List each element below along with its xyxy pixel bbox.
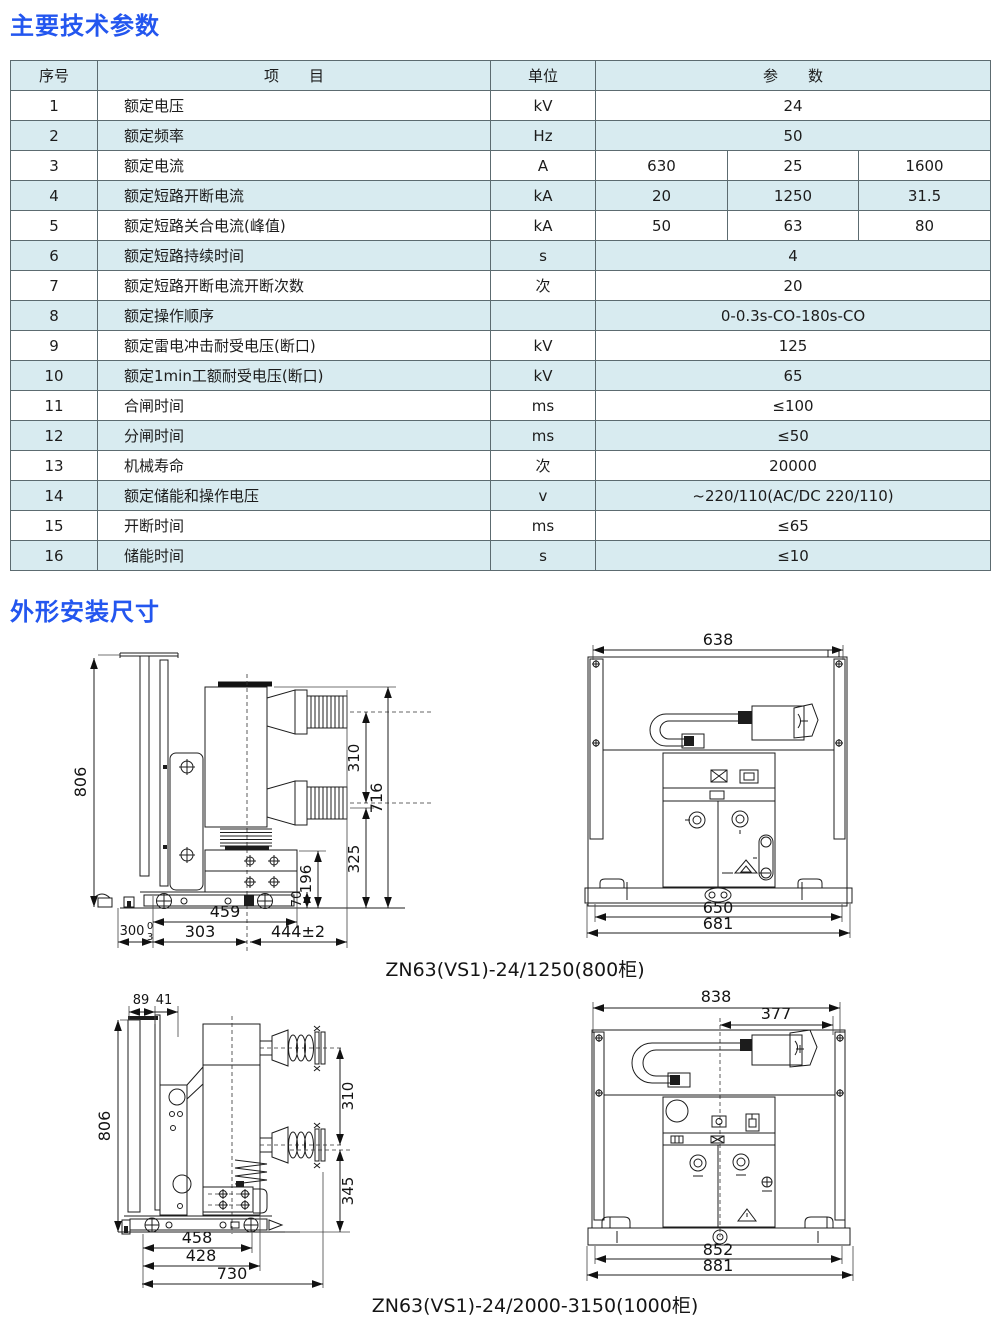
cell-value: ≤65 [596, 511, 991, 541]
cell-no: 15 [11, 511, 98, 541]
cell-no: 14 [11, 481, 98, 511]
cell-unit: kA [491, 211, 596, 241]
indicator-window-icon [711, 770, 758, 783]
dim-89-label: 89 [133, 993, 150, 1008]
cell-no: 6 [11, 241, 98, 271]
cell-no: 3 [11, 151, 98, 181]
cell-unit: ms [491, 511, 596, 541]
cell-item: 额定储能和操作电压 [98, 481, 491, 511]
dim-806-label: 806 [95, 1111, 114, 1142]
cell-value: 31.5 [859, 181, 991, 211]
cell-item: 额定电压 [98, 91, 491, 121]
breaker-side-outline [94, 653, 405, 952]
cell-item: 储能时间 [98, 541, 491, 571]
lower-bushing [260, 1123, 342, 1168]
cell-value: 0-0.3s-CO-180s-CO [596, 301, 991, 331]
table-row: 15开断时间ms≤65 [11, 511, 991, 541]
cell-item: 额定操作顺序 [98, 301, 491, 331]
dim-196-label: 196 [297, 865, 315, 894]
table-row: 16储能时间s≤10 [11, 541, 991, 571]
cell-item: 额定短路持续时间 [98, 241, 491, 271]
dim-638-label: 638 [703, 630, 734, 649]
cell-value: 20 [596, 271, 991, 301]
caption-800-cabinet: ZN63(VS1)-24/1250(800柜) [300, 955, 730, 982]
plug-connector [752, 1030, 817, 1067]
table-row: 11合闸时间ms≤100 [11, 391, 991, 421]
dim-881-label: 881 [703, 1256, 734, 1275]
section-title-technical-parameters: 主要技术参数 [10, 6, 160, 41]
dim-838-label: 838 [701, 987, 732, 1006]
cell-unit: v [491, 481, 596, 511]
dim-300-tol-lower: 3 [147, 932, 153, 943]
dim-310-label: 310 [345, 744, 363, 773]
operation-knob-icon [685, 811, 748, 834]
panel-bolt-icon [592, 660, 843, 747]
drawing-front-view-1000: 838 377 852 881 [570, 985, 1000, 1295]
dim-444-label: 444±2 [271, 922, 325, 941]
drawing-front-view-800: 638 650 681 [570, 630, 1000, 950]
drawing-side-view-1000: 89 41 806 310 345 458 428 730 [60, 982, 490, 1294]
section-title-dimensions: 外形安装尺寸 [10, 592, 160, 627]
cable-loop [650, 711, 752, 748]
cell-value: 20000 [596, 451, 991, 481]
cell-value: 50 [596, 211, 728, 241]
table-row: 4额定短路开断电流kA20125031.5 [11, 181, 991, 211]
cell-item: 合闸时间 [98, 391, 491, 421]
cell-value: ≤50 [596, 421, 991, 451]
cell-unit: 次 [491, 271, 596, 301]
dim-681-label: 681 [703, 914, 734, 933]
cell-value: ≤10 [596, 541, 991, 571]
cabinet-front-outline [585, 650, 852, 906]
cell-value: 24 [596, 91, 991, 121]
cell-no: 12 [11, 421, 98, 451]
cell-item: 额定短路开断电流开断次数 [98, 271, 491, 301]
cell-no: 16 [11, 541, 98, 571]
header-param: 参 数 [596, 61, 991, 91]
dim-716-label: 716 [367, 783, 386, 814]
header-unit: 单位 [491, 61, 596, 91]
warning-triangle-icon [738, 1209, 756, 1221]
cell-item: 开断时间 [98, 511, 491, 541]
cell-unit: s [491, 241, 596, 271]
cell-value: 1600 [859, 151, 991, 181]
breaker-side-outline [118, 1015, 342, 1234]
cell-value: 125 [596, 331, 991, 361]
dim-377-label: 377 [761, 1004, 792, 1023]
dim-300-label: 300 [120, 924, 145, 939]
warning-triangle-icon [722, 860, 770, 873]
table-row: 9额定雷电冲击耐受电压(断口)kV125 [11, 331, 991, 361]
box-bolt-icon [218, 1189, 250, 1210]
cell-unit: kA [491, 181, 596, 211]
cell-item: 分闸时间 [98, 421, 491, 451]
table-row: 2额定频率Hz50 [11, 121, 991, 151]
dimension-lines: 638 650 681 [587, 630, 850, 938]
cell-item: 额定雷电冲击耐受电压(断口) [98, 331, 491, 361]
dim-459-label: 459 [210, 902, 241, 921]
cell-value: ≤100 [596, 391, 991, 421]
bracket-bolt-icon [179, 759, 195, 863]
table-row: 8额定操作顺序0-0.3s-CO-180s-CO [11, 301, 991, 331]
cable-loop [632, 1039, 752, 1087]
table-header-row: 序号 项 目 单位 参 数 [11, 61, 991, 91]
operation-knob-icon [690, 1154, 749, 1176]
dim-806-label: 806 [71, 767, 90, 798]
dim-310-label: 310 [339, 1082, 357, 1111]
dim-41-label: 41 [156, 993, 173, 1008]
cell-unit: s [491, 541, 596, 571]
cell-value: 65 [596, 361, 991, 391]
band-icon [671, 1136, 724, 1143]
cell-value: 25 [728, 151, 859, 181]
cell-unit: ms [491, 421, 596, 451]
cell-no: 7 [11, 271, 98, 301]
cell-no: 1 [11, 91, 98, 121]
cell-value: 630 [596, 151, 728, 181]
cell-unit: ms [491, 391, 596, 421]
cell-no: 13 [11, 451, 98, 481]
cell-no: 5 [11, 211, 98, 241]
cell-unit: Hz [491, 121, 596, 151]
cell-unit: kV [491, 331, 596, 361]
dim-325-label: 325 [345, 845, 363, 874]
small-bolt-icon [762, 1177, 772, 1191]
cell-value: 80 [859, 211, 991, 241]
table-row: 10额定1min工额耐受电压(断口)kV65 [11, 361, 991, 391]
dim-730-label: 730 [217, 1264, 248, 1283]
header-no: 序号 [11, 61, 98, 91]
cell-item: 额定电流 [98, 151, 491, 181]
cell-no: 11 [11, 391, 98, 421]
table-row: 12分闸时间ms≤50 [11, 421, 991, 451]
caption-1000-cabinet: ZN63(VS1)-24/2000-3150(1000柜) [320, 1291, 750, 1318]
cell-value: 1250 [728, 181, 859, 211]
cabinet-front-outline [588, 1018, 850, 1245]
dim-300-tol-upper: 0 [147, 921, 153, 932]
dim-70-label: 70 [290, 891, 305, 908]
dim-428-label: 428 [186, 1246, 217, 1265]
spec-table-body: 1额定电压kV242额定频率Hz503额定电流A6302516004额定短路开断… [11, 91, 991, 571]
cell-unit: 次 [491, 451, 596, 481]
cell-unit: kV [491, 91, 596, 121]
cell-unit [491, 301, 596, 331]
spec-table: 序号 项 目 单位 参 数 1额定电压kV242额定频率Hz503额定电流A63… [10, 60, 991, 571]
table-row: 13机械寿命次20000 [11, 451, 991, 481]
cell-no: 4 [11, 181, 98, 211]
cell-no: 10 [11, 361, 98, 391]
cell-value: ~220/110(AC/DC 220/110) [596, 481, 991, 511]
table-row: 5额定短路关合电流(峰值)kA506380 [11, 211, 991, 241]
cell-value: 20 [596, 181, 728, 211]
cell-unit: A [491, 151, 596, 181]
cell-value: 63 [728, 211, 859, 241]
table-row: 6额定短路持续时间s4 [11, 241, 991, 271]
cell-no: 9 [11, 331, 98, 361]
dim-303-label: 303 [185, 922, 216, 941]
plug-connector [752, 704, 818, 740]
table-row: 3额定电流A630251600 [11, 151, 991, 181]
cell-no: 8 [11, 301, 98, 331]
header-item: 项 目 [98, 61, 491, 91]
cell-item: 额定1min工额耐受电压(断口) [98, 361, 491, 391]
table-row: 14额定储能和操作电压v~220/110(AC/DC 220/110) [11, 481, 991, 511]
cell-value: 4 [596, 241, 991, 271]
cell-value: 50 [596, 121, 991, 151]
dimension-lines: 89 41 806 310 345 458 428 730 [95, 993, 357, 1288]
cell-item: 额定短路开断电流 [98, 181, 491, 211]
dim-458-label: 458 [182, 1228, 213, 1247]
cell-item: 额定频率 [98, 121, 491, 151]
cell-no: 2 [11, 121, 98, 151]
cell-item: 机械寿命 [98, 451, 491, 481]
upper-bushing [260, 1026, 342, 1071]
table-row: 7额定短路开断电流开断次数次20 [11, 271, 991, 301]
indicator-window-icon [712, 1114, 759, 1131]
dim-345-label: 345 [339, 1177, 357, 1206]
cell-unit: kV [491, 361, 596, 391]
table-row: 1额定电压kV24 [11, 91, 991, 121]
drawing-side-view-800: 806 310 716 325 196 70 459 300 0 3 303 4… [60, 640, 490, 960]
cell-item: 额定短路关合电流(峰值) [98, 211, 491, 241]
